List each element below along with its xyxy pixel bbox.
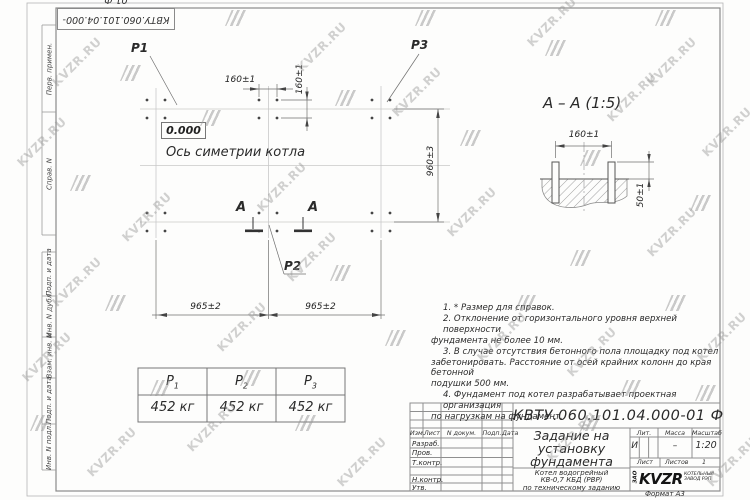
- point-label-p3: P3: [411, 38, 428, 52]
- titleblock-mass-label: Масса: [658, 430, 692, 437]
- titleblock-lit-label: Лит.: [630, 430, 658, 437]
- load-table-value-p3: 452 кг: [276, 400, 345, 415]
- titleblock-col-data: Дата: [502, 430, 513, 437]
- section-title: А – А (1:5): [543, 94, 621, 112]
- dim-160-vertical: 160±1: [295, 59, 305, 99]
- note-line: забетонировать. Расстояние от осей крайн…: [431, 358, 731, 380]
- titleblock-col-podp: Подп.: [482, 430, 502, 437]
- point-label-p2: P2: [284, 259, 301, 273]
- symmetry-axis-label: Ось симетрии котла: [166, 145, 305, 160]
- load-table-value-p1: 452 кг: [138, 400, 207, 415]
- format-label: Формат А3: [645, 490, 685, 498]
- titleblock-title: Задание на установку фундамента: [513, 429, 630, 468]
- margin-label-sprav-n: Справ. N: [42, 112, 56, 235]
- logo-tagline: КОТЕЛЬНЫЙ ЗАВОД РЭП: [684, 472, 720, 483]
- logo-zao-text: ЗАО: [632, 471, 638, 484]
- titleblock-mass-value: –: [658, 441, 692, 451]
- margin-label-inv-dubl: Инв. N дубл.: [42, 296, 56, 337]
- dim-965-left: 965±2: [183, 302, 228, 312]
- load-table-value-p2: 452 кг: [207, 400, 276, 415]
- titleblock-sheets-value: 1: [702, 459, 706, 466]
- titleblock-scale-value: 1:20: [692, 440, 720, 451]
- drawing-sheet: КВТУ.060.101.04.000-01 Ф Перв. примен. С…: [0, 0, 750, 500]
- dim-960: 960±3: [426, 141, 436, 181]
- margin-label-perv-primen: Перв. примен.: [42, 25, 56, 112]
- titleblock-col-doc: N докум.: [441, 430, 482, 437]
- dim-965-right: 965±2: [298, 302, 343, 312]
- dim-160-horizontal: 160±1: [224, 75, 256, 85]
- point-label-p1: P1: [131, 41, 148, 55]
- titleblock-col-list: Лист: [423, 430, 441, 437]
- titleblock-col-izm: Изм.: [410, 430, 423, 437]
- margin-label-podp-data-2: Подп. и дата: [42, 378, 56, 424]
- titleblock-subtitle: Котел водогрейный КВ-0,7 КБД (РВР) по те…: [513, 470, 630, 492]
- margin-label-inv-podl: Инв. N подл.: [42, 424, 56, 470]
- load-table-header-p3: P3: [276, 374, 345, 391]
- titleblock-scale-label: Масштаб: [692, 430, 720, 437]
- margin-label-podp-data-1: Подп. и дата: [42, 252, 56, 296]
- titleblock-row-prov: Пров.: [412, 449, 432, 457]
- kvzr-logo: KVZR: [639, 470, 683, 488]
- titleblock-row-utv: Утв.: [412, 484, 427, 492]
- doc-number-stamp-text: КВТУ.060.101.04.000-01 Ф: [58, 9, 174, 29]
- section-dim-50: 50±1: [636, 175, 646, 215]
- titleblock-row-nkontr: Н.контр.: [412, 476, 443, 484]
- titleblock-sheet-label: Лист: [630, 459, 660, 466]
- load-table-header-p1: P1: [138, 374, 207, 391]
- section-dim-160: 160±1: [568, 130, 600, 140]
- note-line: 1. * Размер для справок.: [431, 303, 731, 314]
- note-line: 2. Отклонение от горизонтального уровня …: [431, 314, 731, 336]
- level-mark: 0.000: [161, 122, 206, 139]
- margin-label-vzam-inv: Взам. инв. N: [42, 337, 56, 378]
- note-line: фундамента не более 10 мм.: [431, 336, 731, 347]
- note-line: 3. В случае отсутствия бетонного пола пл…: [431, 347, 731, 358]
- titleblock-row-razrab: Разраб.: [412, 440, 440, 448]
- load-table-header-p2: P2: [207, 374, 276, 391]
- titleblock-row-tkontr: Т.контр.: [412, 459, 442, 467]
- section-mark-a-right: А: [308, 200, 318, 215]
- note-line: подушки 500 мм.: [431, 379, 731, 390]
- doc-number-stamp: КВТУ.060.101.04.000-01 Ф: [57, 8, 175, 30]
- section-mark-a-left: А: [236, 200, 246, 215]
- titleblock-lit-value: И: [630, 441, 639, 451]
- titleblock-sheets-label: Листов: [665, 459, 689, 466]
- titleblock-doc-number: КВТУ.060.101.04.000-01 Ф: [513, 404, 720, 428]
